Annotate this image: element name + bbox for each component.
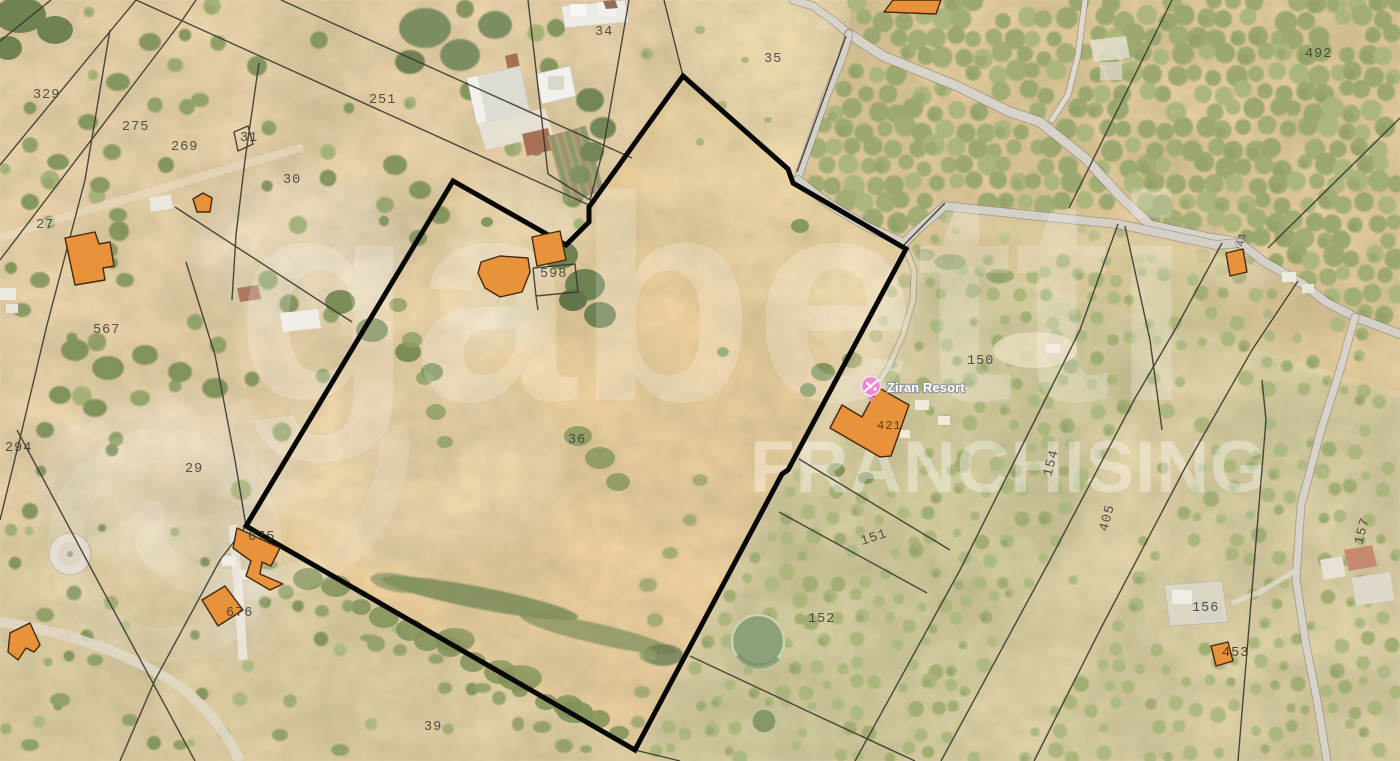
svg-text:156: 156 bbox=[1192, 601, 1219, 616]
svg-text:453: 453 bbox=[1222, 646, 1249, 661]
svg-text:421: 421 bbox=[877, 419, 902, 433]
svg-text:269: 269 bbox=[171, 140, 198, 155]
svg-text:35: 35 bbox=[764, 52, 782, 67]
svg-text:39: 39 bbox=[424, 720, 442, 735]
svg-text:29: 29 bbox=[185, 462, 203, 477]
svg-text:492: 492 bbox=[1305, 47, 1332, 62]
svg-text:31: 31 bbox=[240, 131, 258, 146]
svg-text:30: 30 bbox=[283, 173, 301, 188]
svg-text:FRANCHISING: FRANCHISING bbox=[750, 427, 1268, 508]
svg-text:676: 676 bbox=[226, 606, 253, 621]
svg-text:Ziran Resort: Ziran Resort bbox=[887, 380, 965, 395]
svg-text:675: 675 bbox=[248, 530, 275, 545]
svg-text:152: 152 bbox=[808, 612, 835, 627]
svg-text:598: 598 bbox=[540, 267, 567, 282]
svg-text:294: 294 bbox=[5, 441, 32, 456]
svg-text:27: 27 bbox=[36, 218, 54, 233]
svg-text:251: 251 bbox=[369, 93, 396, 108]
svg-text:36: 36 bbox=[568, 433, 586, 448]
svg-text:567: 567 bbox=[93, 323, 120, 338]
svg-text:329: 329 bbox=[33, 88, 60, 103]
svg-text:gabetti: gabetti bbox=[235, 136, 1192, 464]
svg-text:150: 150 bbox=[967, 354, 994, 369]
svg-text:41: 41 bbox=[1235, 231, 1249, 247]
svg-text:34: 34 bbox=[595, 25, 613, 40]
svg-text:275: 275 bbox=[122, 120, 149, 135]
